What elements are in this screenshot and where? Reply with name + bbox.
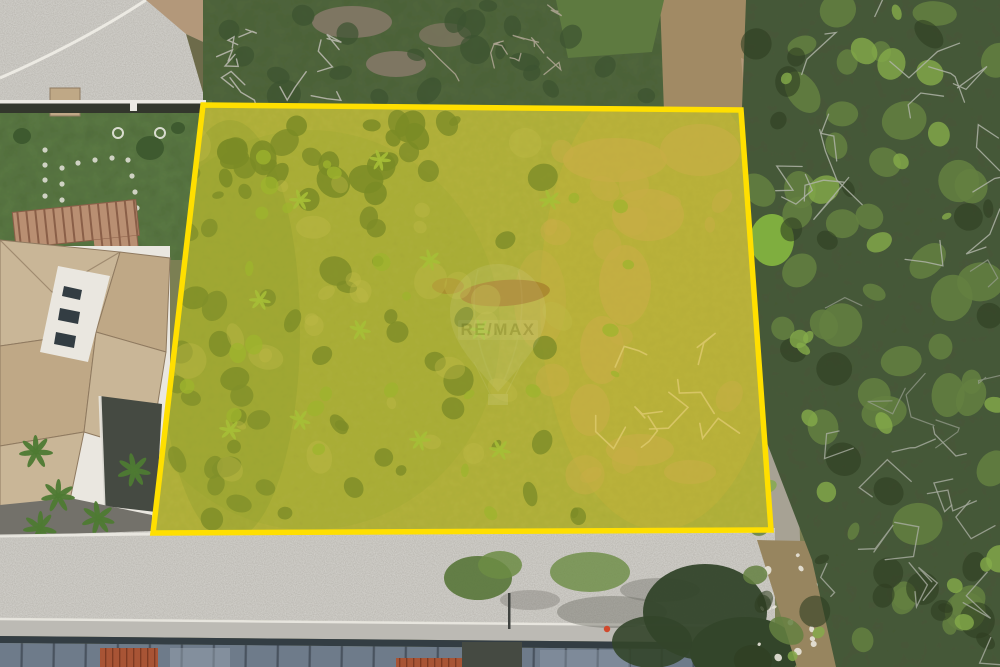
stepping-stone xyxy=(42,193,47,198)
street-curb-left xyxy=(0,534,150,536)
stepping-stone xyxy=(129,173,134,178)
stepping-stone xyxy=(125,157,130,162)
left-house xyxy=(0,240,170,545)
red-tile-roof xyxy=(396,658,462,667)
roof-dark-section xyxy=(462,642,522,667)
stepping-stone xyxy=(75,160,80,165)
boundary-wall xyxy=(0,100,206,113)
watermark-brand-text: RE/MAX xyxy=(460,320,535,339)
gate-post xyxy=(130,103,137,111)
stepping-stone xyxy=(132,189,137,194)
stepping-stone xyxy=(59,165,64,170)
overhanging-tree-dark xyxy=(612,616,692,667)
person-in-red xyxy=(604,626,610,632)
scene-svg: RE/MAX xyxy=(0,0,1000,667)
top-brush-strip xyxy=(203,0,746,118)
garden-tree xyxy=(136,136,164,160)
red-tile-roof xyxy=(100,648,158,667)
stepping-stone xyxy=(42,177,47,182)
garden-tree xyxy=(13,128,31,144)
stepping-stone xyxy=(59,197,64,202)
stepping-stone xyxy=(42,147,47,152)
stepping-stone xyxy=(109,155,114,160)
dirt-area-top-right xyxy=(660,0,746,112)
overhanging-tree xyxy=(478,551,522,579)
stepping-stone xyxy=(59,181,64,186)
street-pole xyxy=(508,593,511,629)
bottom-street xyxy=(0,528,800,667)
stepping-stone xyxy=(92,157,97,162)
aerial-photo[interactable]: RE/MAX xyxy=(0,0,1000,667)
garden-tree xyxy=(171,122,185,134)
cul-de-sac-street xyxy=(0,0,238,103)
stepping-stone xyxy=(42,162,47,167)
roof-panel-light xyxy=(170,648,230,667)
overhanging-tree xyxy=(550,552,630,592)
balloon-basket xyxy=(488,394,508,405)
